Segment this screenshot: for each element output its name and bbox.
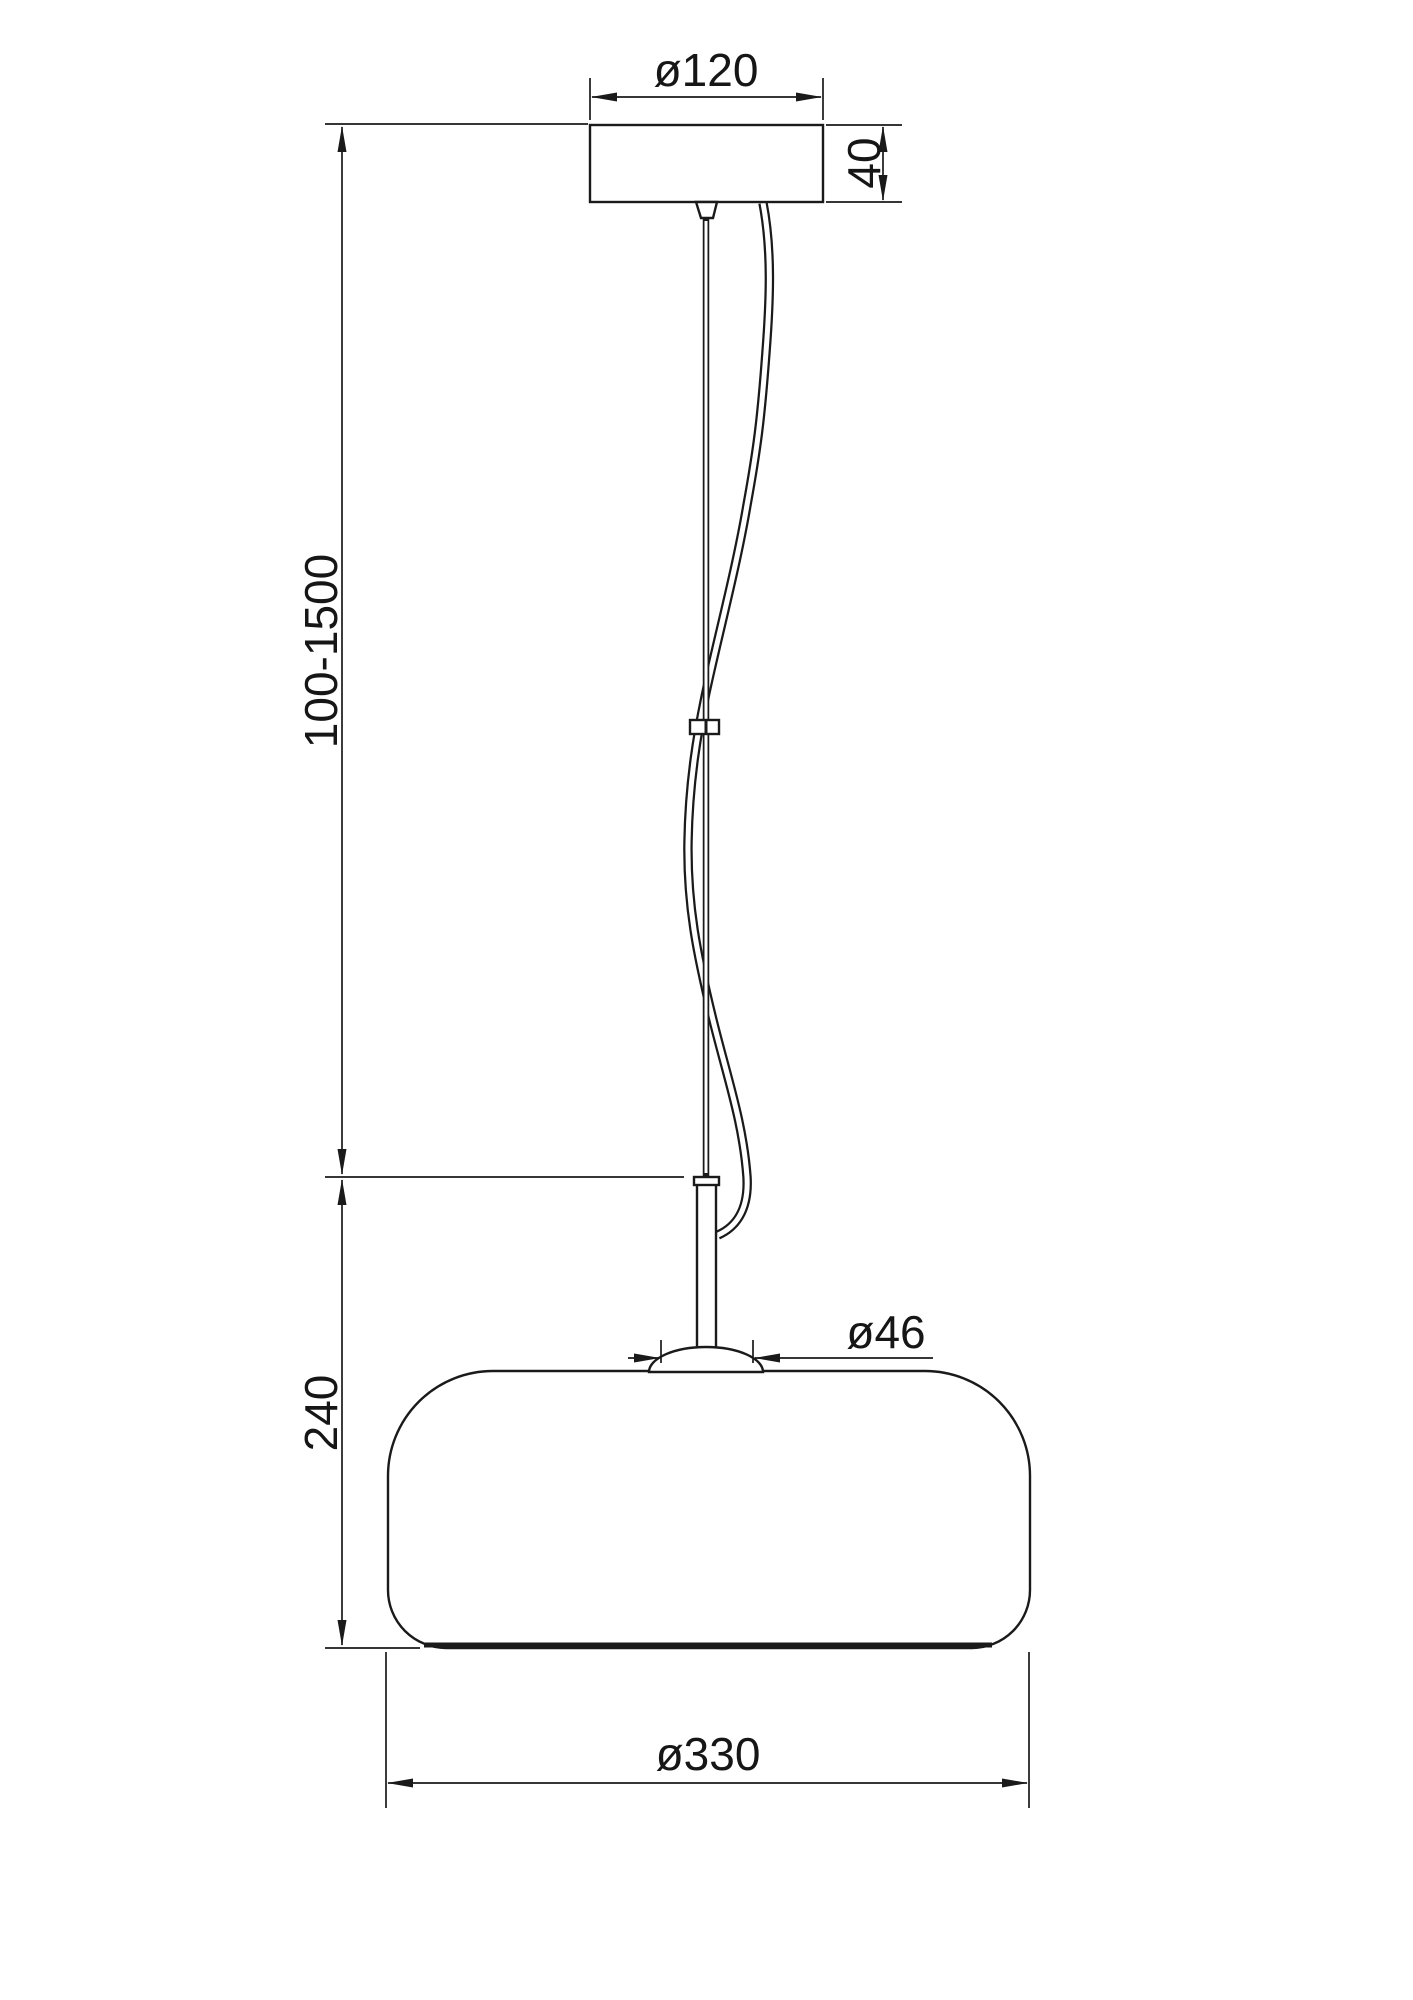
canopy-diameter-label: ø120 [654, 44, 759, 96]
shade-diameter-label: ø330 [656, 1728, 761, 1780]
arrowhead-down [338, 1149, 347, 1175]
stem-body [697, 1184, 716, 1350]
drawing-canvas: ø120 40 100-1500 240 [0, 0, 1413, 2000]
shade-height-label: 240 [295, 1375, 347, 1452]
stem [694, 1177, 719, 1350]
canopy-body [590, 125, 823, 202]
pendant-lamp-technical-drawing: ø120 40 100-1500 240 [0, 0, 1413, 2000]
arrowhead-left [591, 93, 617, 102]
arrowhead-up [338, 126, 347, 152]
ceiling-canopy [590, 125, 823, 218]
shade-silhouette [388, 1371, 1030, 1648]
arrowhead-down [338, 1620, 347, 1646]
arrowhead-right [1002, 1779, 1028, 1788]
dim-canopy-diameter: ø120 [590, 44, 823, 120]
cable-grip [696, 202, 717, 218]
arrowhead-left [387, 1779, 413, 1788]
dim-shade-diameter: ø330 [386, 1652, 1029, 1808]
suspension-length-label: 100-1500 [295, 554, 347, 748]
cable-adjuster [690, 720, 719, 734]
dim-canopy-height: 40 [826, 125, 902, 202]
lamp-shade [388, 1371, 1030, 1648]
arrowhead-right [796, 93, 822, 102]
fitting-dome [649, 1347, 763, 1372]
arrowhead-up [338, 1179, 347, 1205]
canopy-height-label: 40 [838, 137, 890, 188]
fitting-diameter-label: ø46 [846, 1306, 925, 1358]
dim-suspension-length: 100-1500 [295, 124, 684, 1177]
stem-cap [694, 1177, 719, 1185]
